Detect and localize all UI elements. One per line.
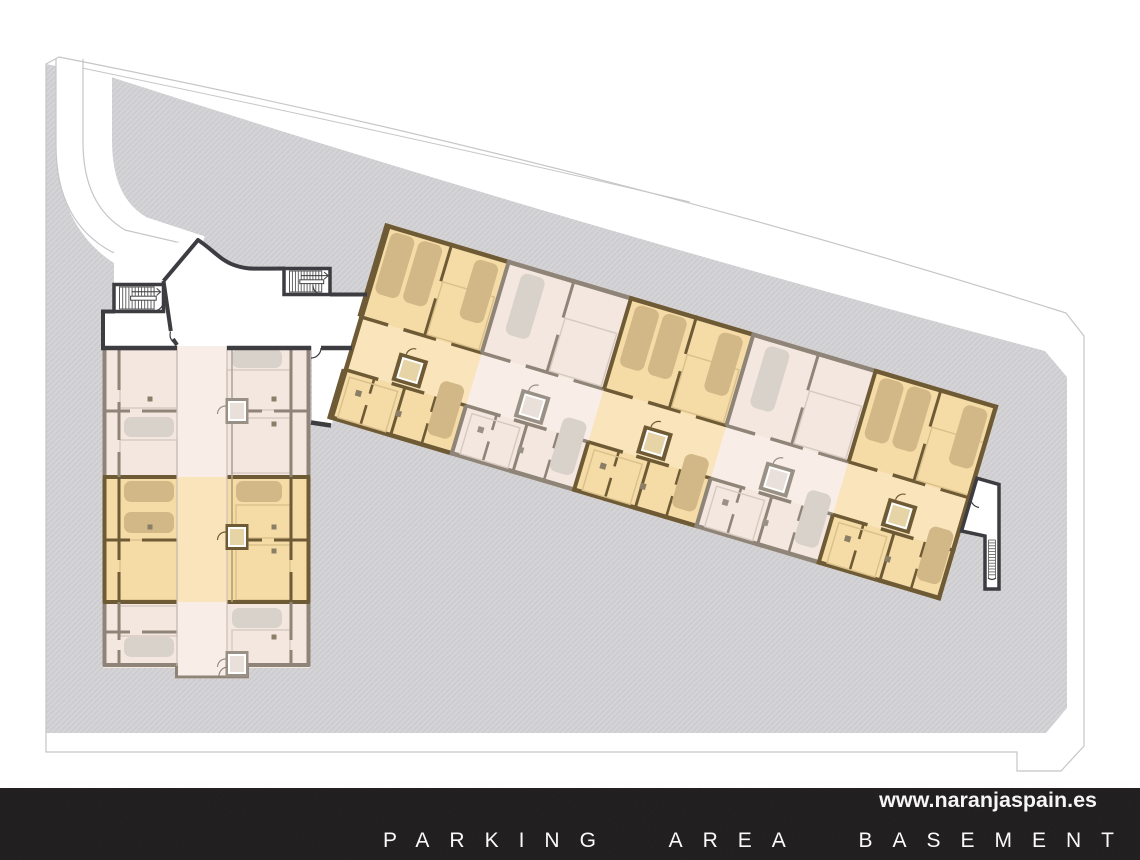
svg-text:PARKING AREA BASEMENT: PARKING AREA BASEMENT <box>383 829 1134 852</box>
svg-text:www.naranjaspain.es: www.naranjaspain.es <box>878 788 1097 812</box>
